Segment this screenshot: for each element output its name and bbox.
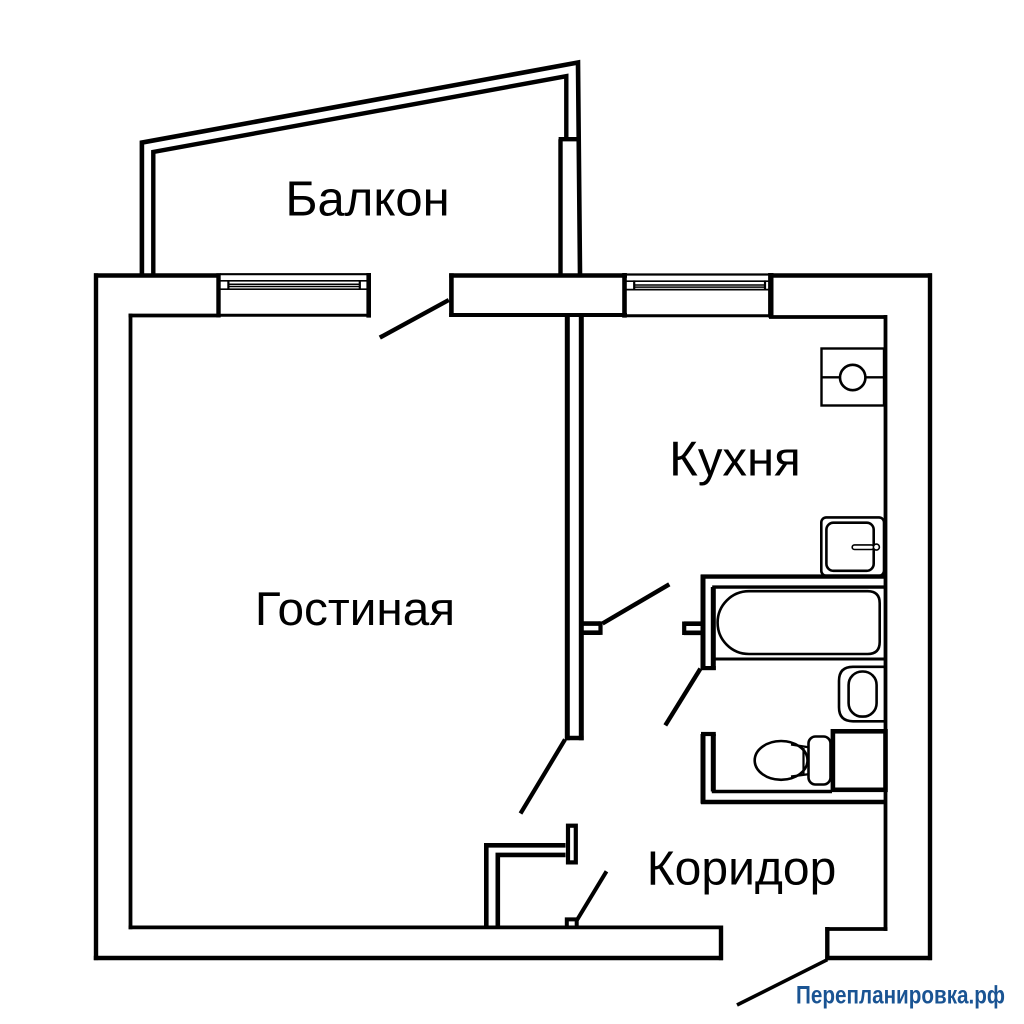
svg-text:Перепланировка.рф: Перепланировка.рф [796, 982, 1005, 1010]
svg-text:Кухня: Кухня [669, 432, 801, 487]
svg-text:Балкон: Балкон [285, 172, 449, 226]
svg-text:Коридор: Коридор [647, 843, 837, 896]
svg-text:Гостиная: Гостиная [255, 583, 455, 636]
